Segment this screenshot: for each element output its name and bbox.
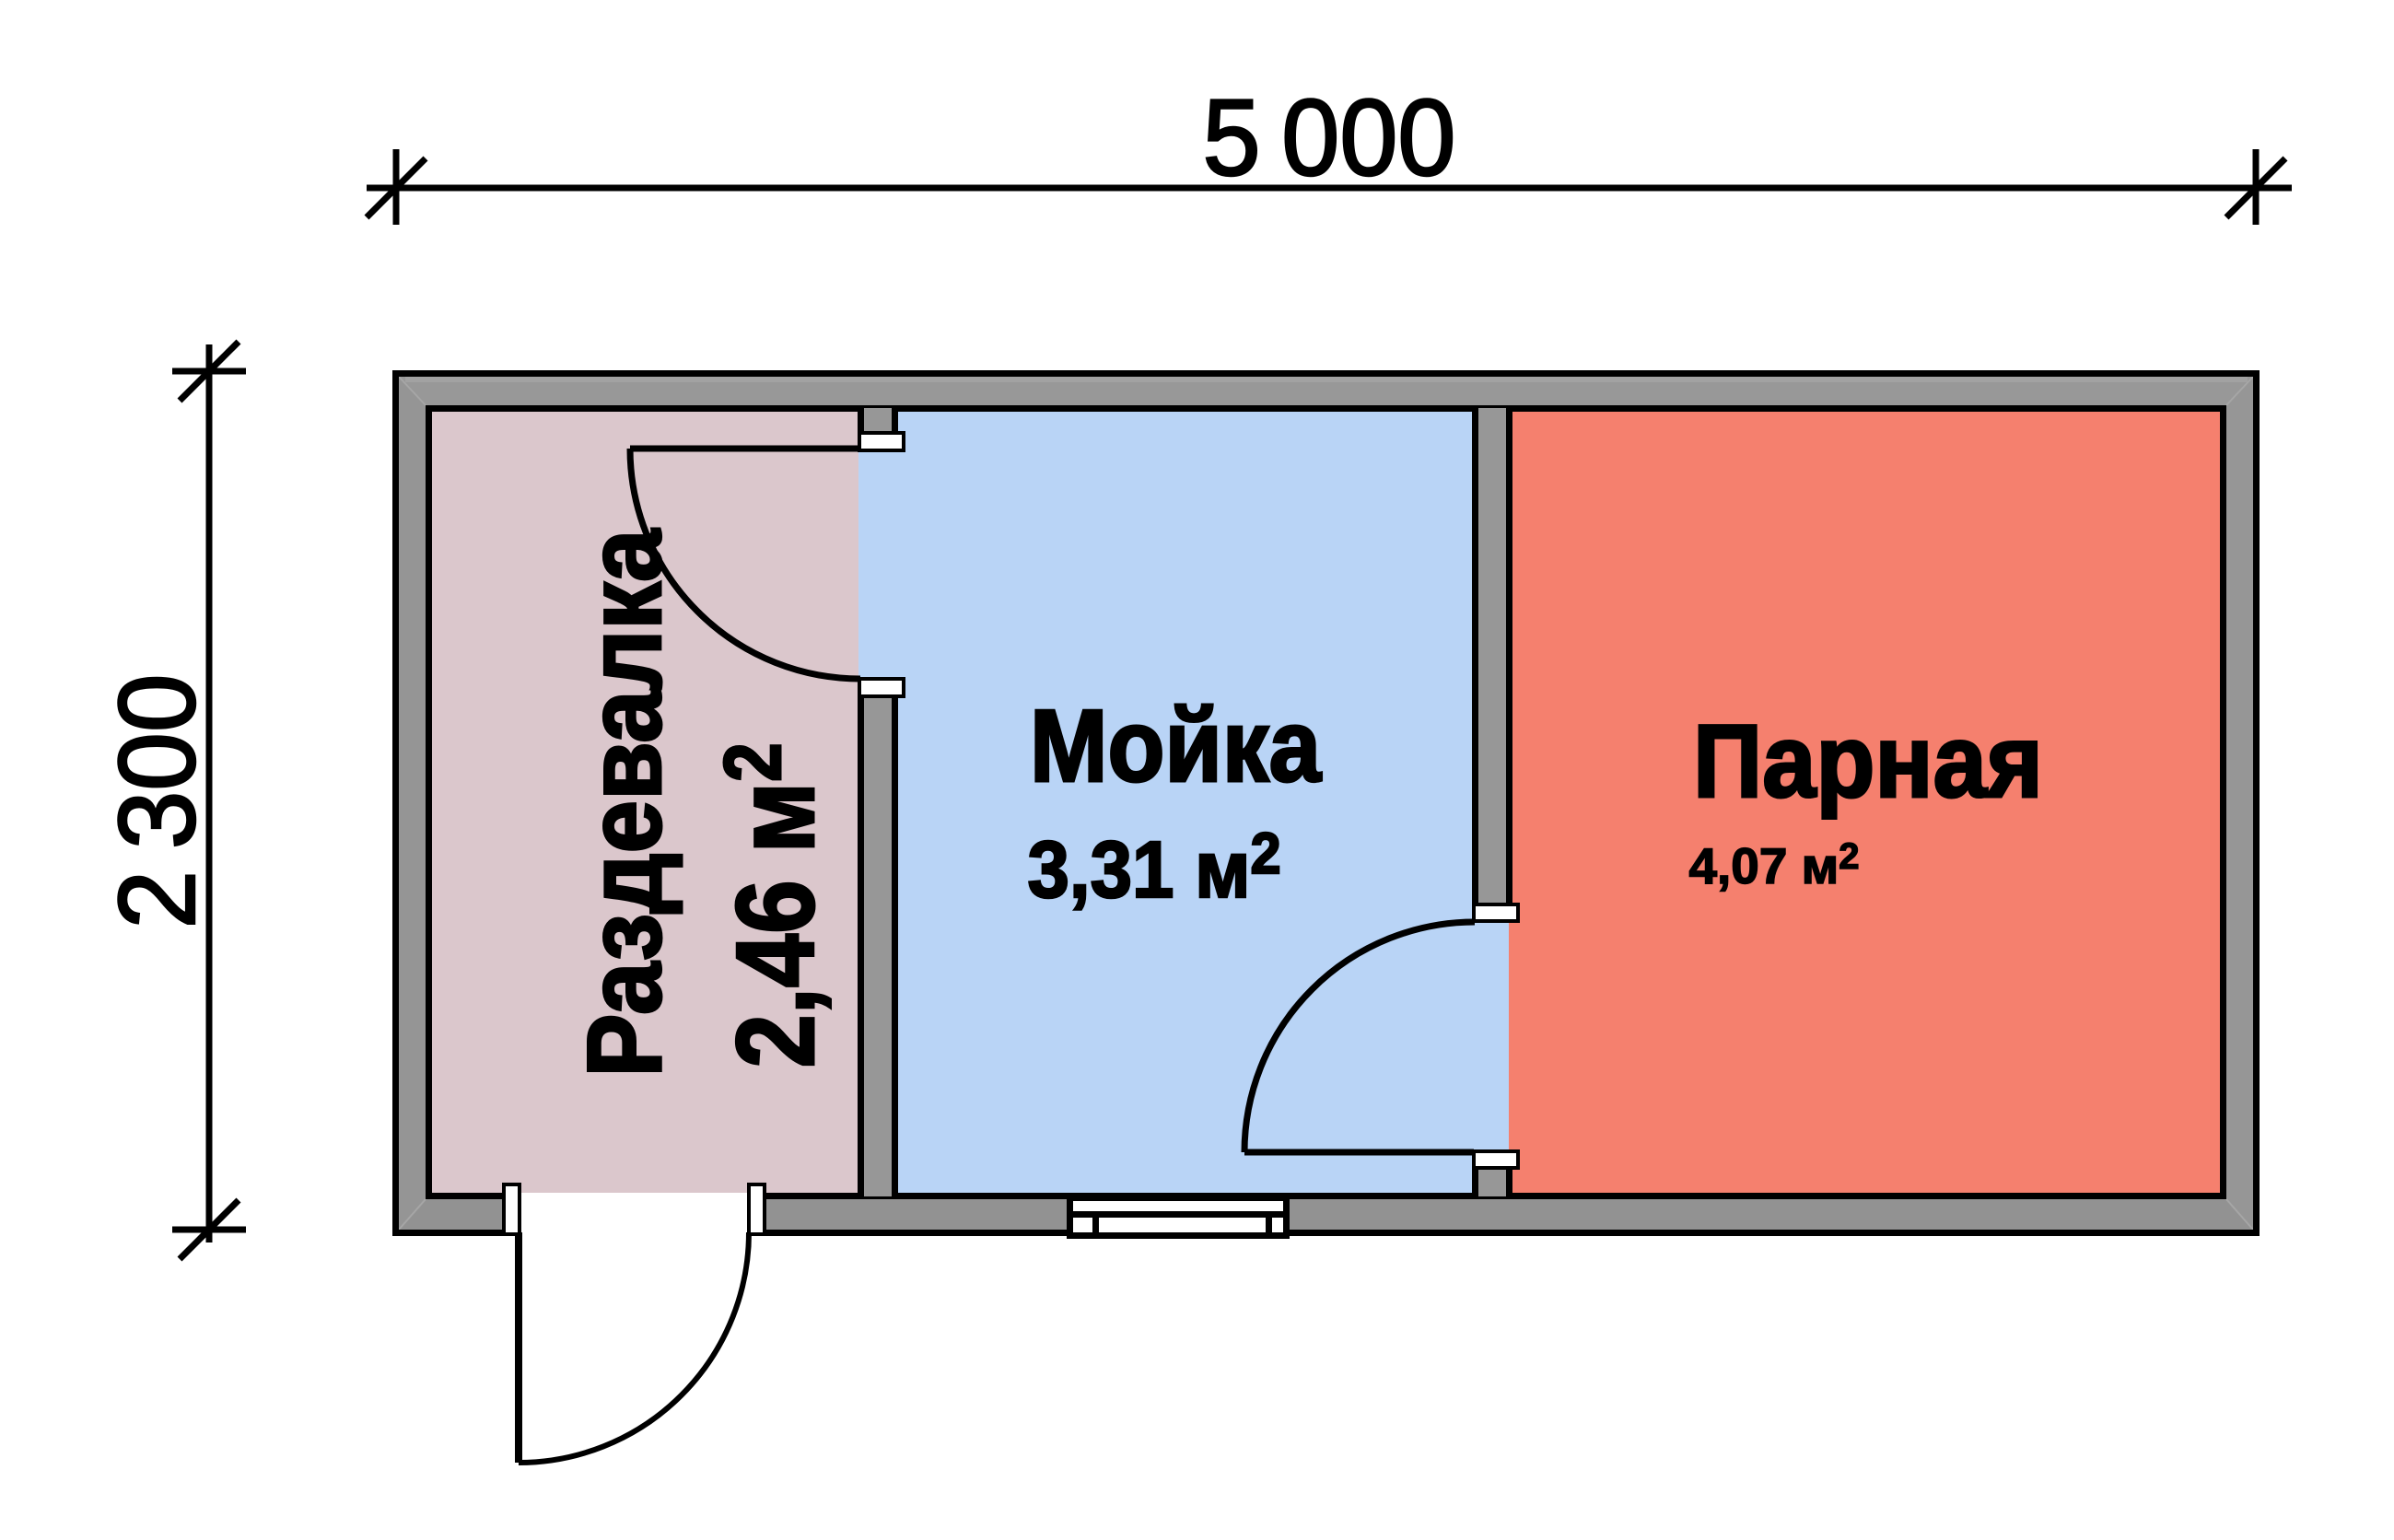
svg-text:3,31 м2: 3,31 м2 — [1028, 822, 1281, 915]
svg-text:Раздевалка: Раздевалка — [566, 528, 683, 1077]
svg-text:4,07 м2: 4,07 м2 — [1689, 836, 1860, 894]
svg-text:5 000: 5 000 — [1203, 77, 1456, 199]
svg-text:2,46 м2: 2,46 м2 — [708, 743, 837, 1068]
svg-text:Парная: Парная — [1693, 704, 2043, 819]
svg-text:2 300: 2 300 — [97, 674, 218, 929]
svg-text:Мойка: Мойка — [1030, 689, 1322, 803]
